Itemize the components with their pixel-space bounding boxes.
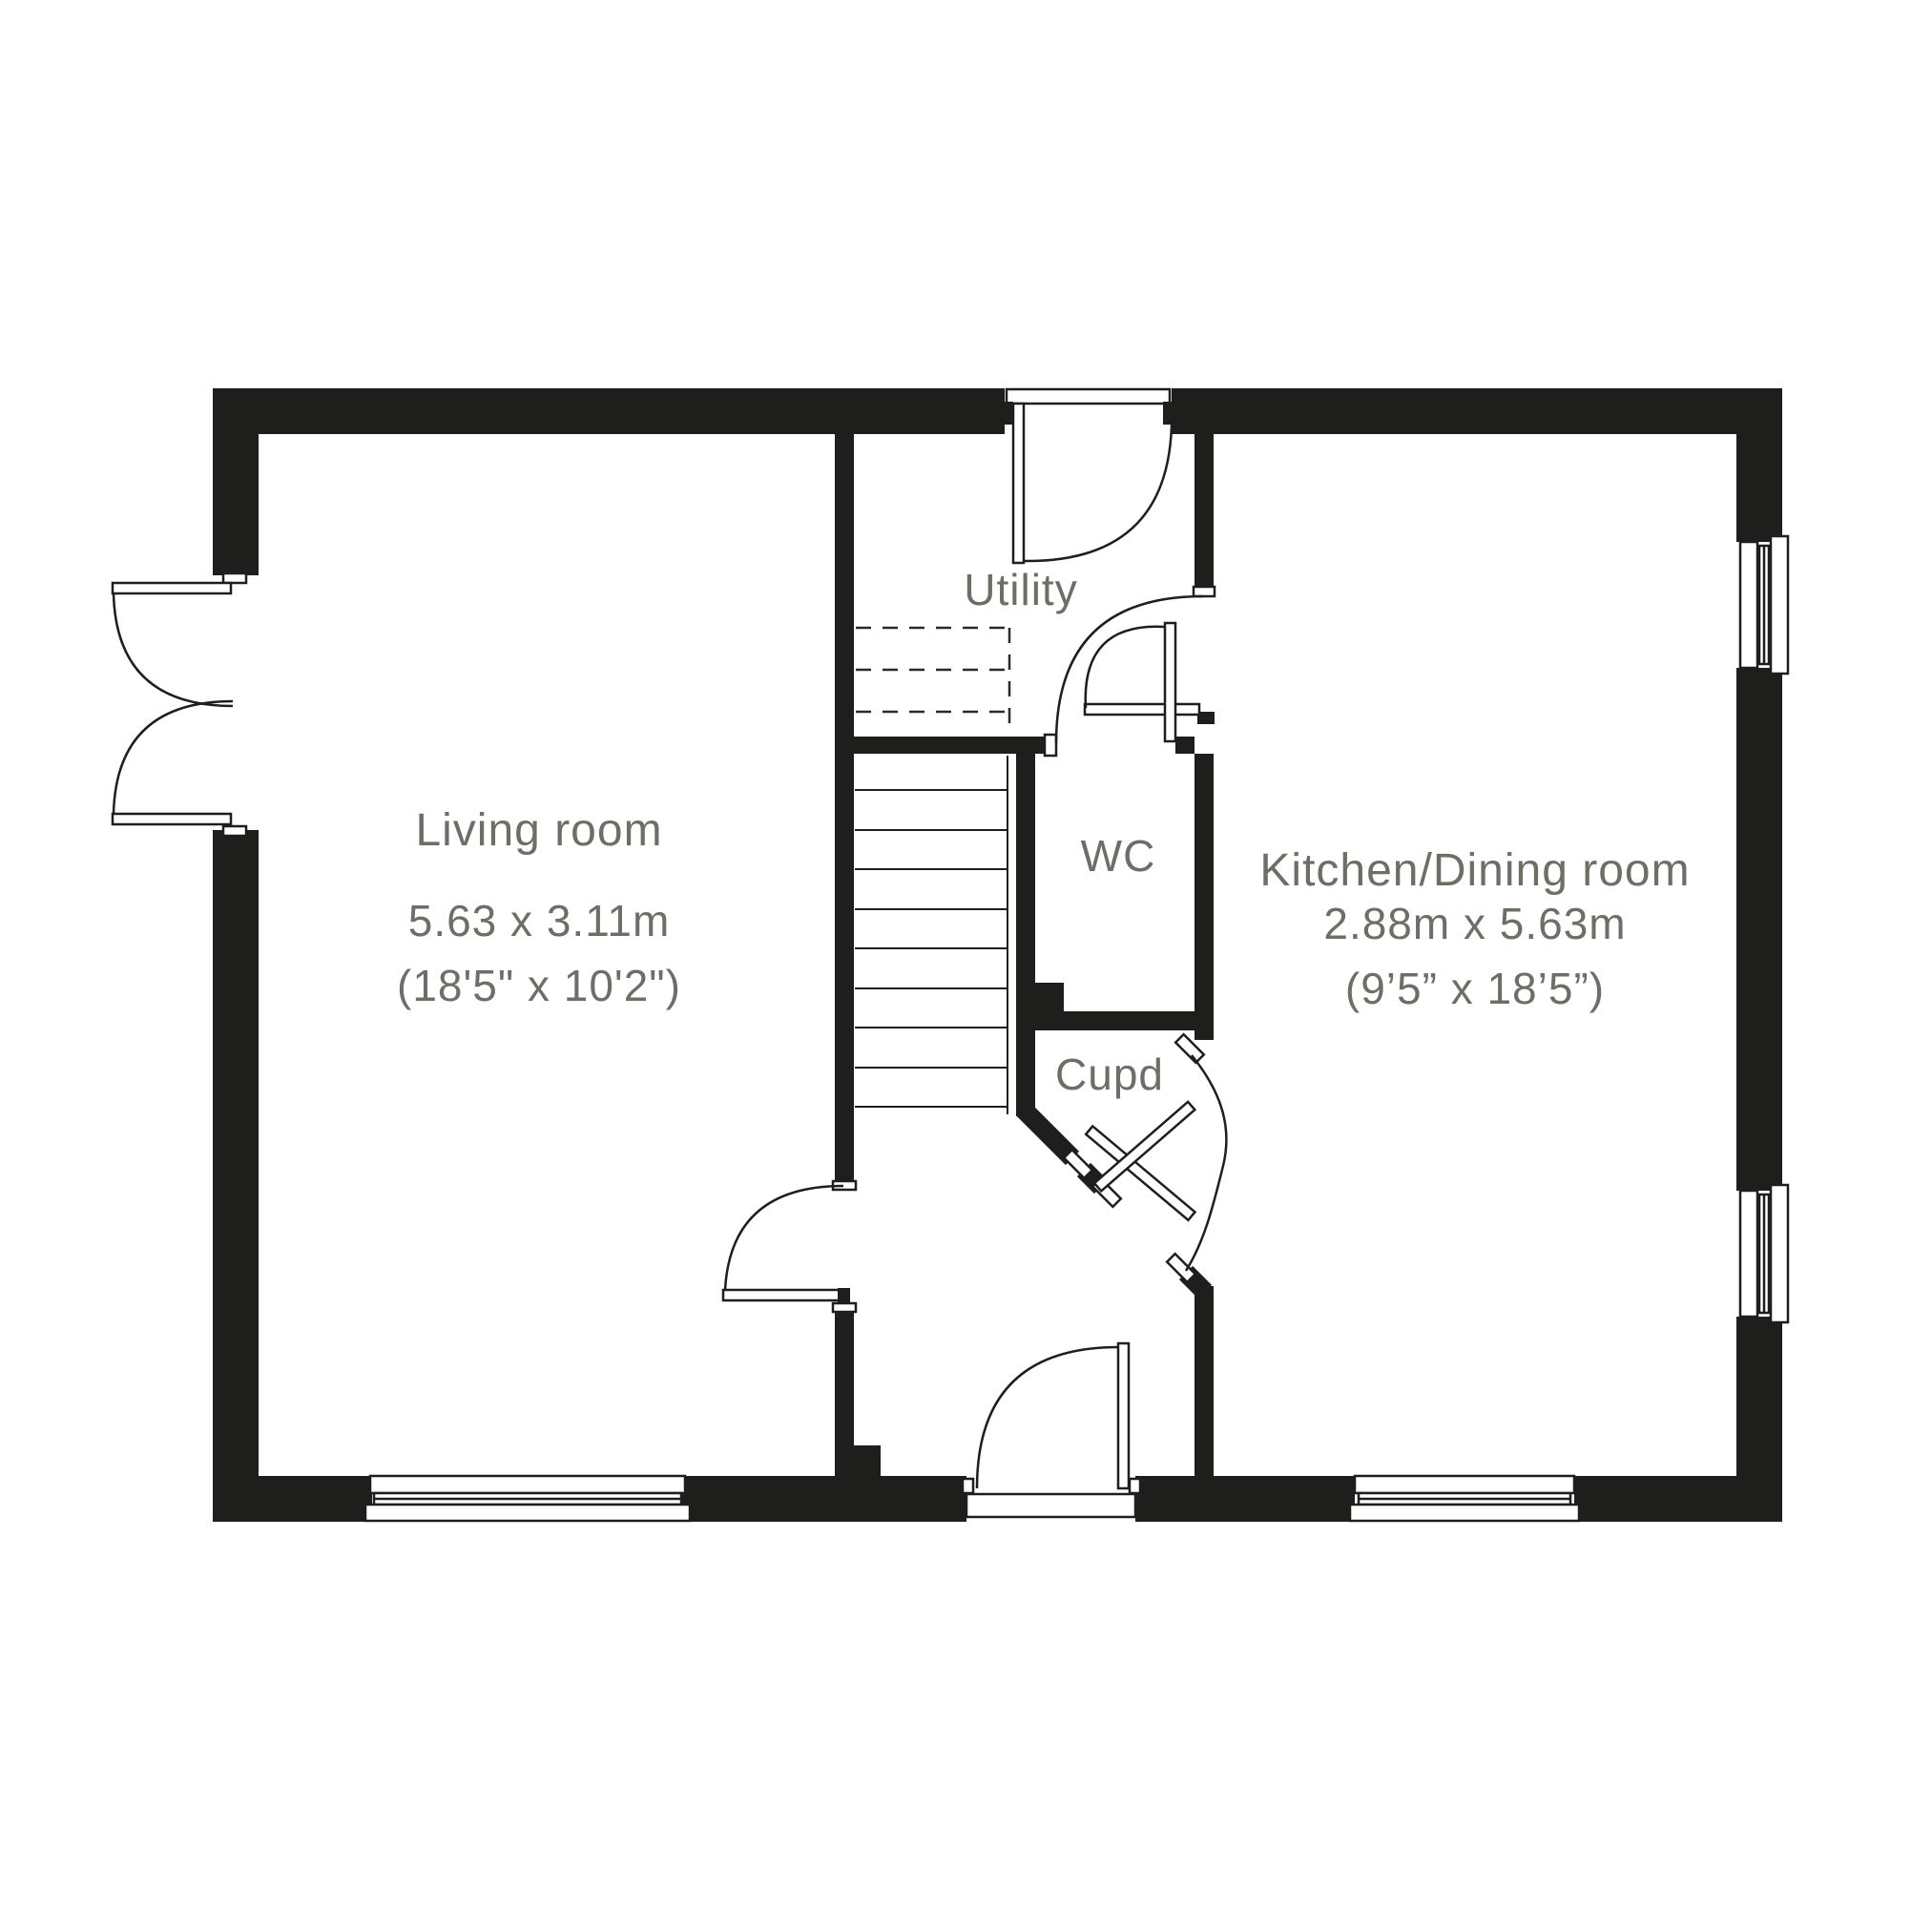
- wall-cupd-diagonal-1: [1024, 1110, 1072, 1158]
- wall-right-middle: [1736, 668, 1782, 1191]
- wall-wc-bottom: [1035, 1011, 1195, 1030]
- wc-label: WC: [1081, 831, 1156, 881]
- door-wc: [1085, 623, 1215, 741]
- door-front-entrance: [963, 1343, 1140, 1517]
- wall-right-upper: [1736, 388, 1782, 542]
- wall-bottom-seg2: [682, 1476, 966, 1522]
- wall-hall-living-stub: [835, 1312, 854, 1476]
- wall-bottom-seg3: [1135, 1476, 1355, 1522]
- floorplan-page: Living room 5.63 x 3.11m (18'5" x 10'2")…: [0, 0, 1932, 1932]
- wall-bottom-seg1: [213, 1476, 372, 1522]
- wall-hall-living-foot: [854, 1445, 881, 1476]
- wall-wc-top-jamb: [1175, 737, 1195, 754]
- kitchen-label: Kitchen/Dining room: [1259, 845, 1690, 896]
- utility-appliance-space: [856, 628, 1009, 733]
- wall-utility-bottom: [835, 737, 1047, 754]
- window-kitchen-right-lower: [1740, 1185, 1788, 1322]
- doors: [113, 388, 1226, 1517]
- wall-kitchen-hall: [1195, 1286, 1214, 1476]
- living-room-metric: 5.63 x 3.11m: [408, 896, 671, 945]
- wall-wc-step: [1035, 983, 1064, 1011]
- door-living-room: [723, 1181, 856, 1312]
- wall-bottom-seg4: [1574, 1476, 1782, 1522]
- wall-wc-left: [1016, 754, 1035, 1116]
- wall-left-upper: [213, 388, 259, 575]
- walls: [213, 388, 1782, 1522]
- wall-left-lower: [213, 830, 259, 1476]
- wall-top-left-segment: [213, 388, 1005, 434]
- window-kitchen-right-upper: [1740, 536, 1788, 674]
- kitchen-imperial: (9’5” x 18’5”): [1345, 964, 1605, 1013]
- wall-top-right-segment: [1172, 388, 1782, 434]
- cupboard-label: Cupd: [1055, 1049, 1164, 1099]
- staircase: [855, 756, 1008, 1114]
- window-kitchen-bottom: [1350, 1476, 1579, 1521]
- kitchen-metric: 2.88m x 5.63m: [1323, 899, 1626, 948]
- window-living-bottom: [365, 1476, 690, 1521]
- floor-plan-drawing: Living room 5.63 x 3.11m (18'5" x 10'2")…: [0, 0, 1932, 1932]
- living-room-label: Living room: [415, 805, 662, 856]
- living-room-imperial: (18'5" x 10'2"): [397, 961, 681, 1010]
- wall-utility-kitchen: [1195, 434, 1214, 589]
- utility-label: Utility: [964, 565, 1077, 614]
- wall-wc-right: [1195, 754, 1214, 1040]
- wall-hall-living: [835, 434, 854, 1183]
- door-french-left: [113, 573, 246, 836]
- door-utility-external: [1005, 388, 1172, 563]
